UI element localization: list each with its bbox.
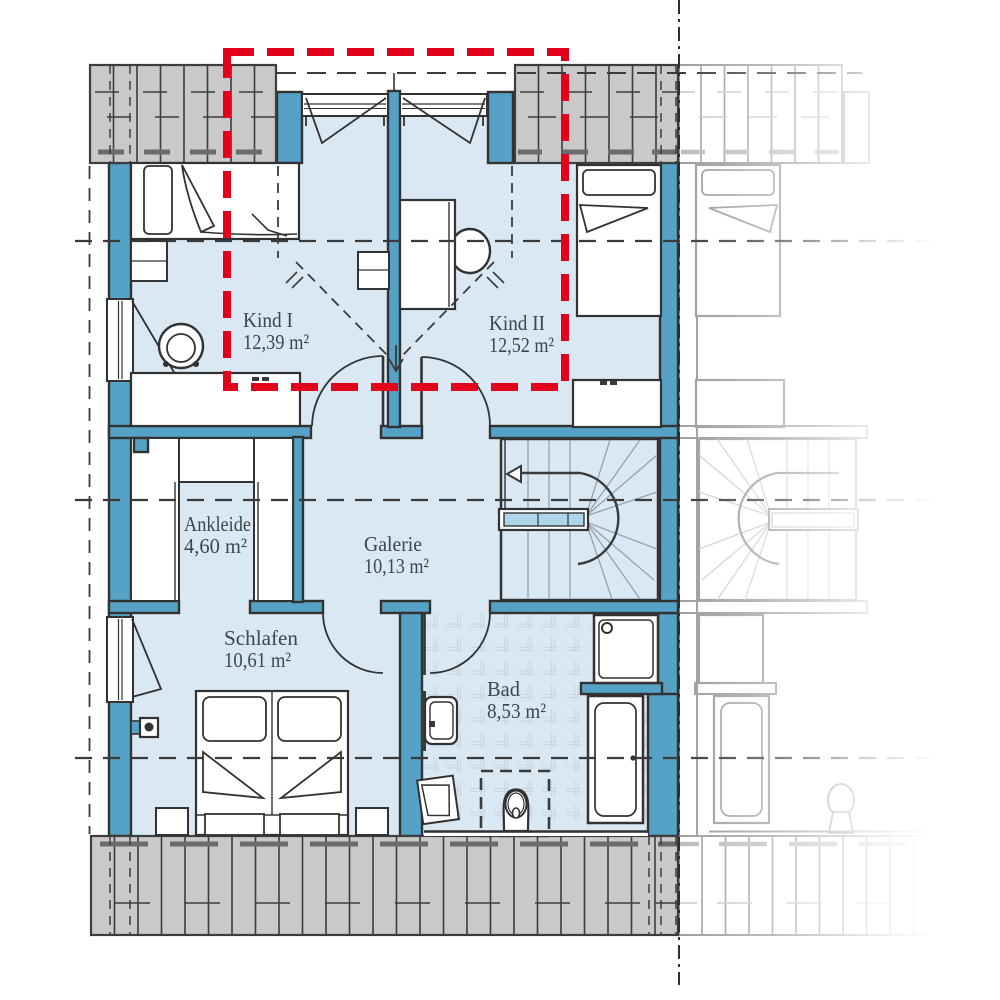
svg-text:Kind II: Kind II <box>489 311 545 335</box>
svg-text:8,53 m²: 8,53 m² <box>487 699 546 723</box>
svg-text:Ankleide: Ankleide <box>184 512 251 536</box>
svg-text:10,61 m²: 10,61 m² <box>224 648 291 672</box>
svg-text:Galerie: Galerie <box>364 532 422 556</box>
svg-text:12,39 m²: 12,39 m² <box>243 330 309 354</box>
svg-text:Kind I: Kind I <box>243 308 293 332</box>
svg-text:4,60 m²: 4,60 m² <box>184 534 247 558</box>
svg-text:10,13 m²: 10,13 m² <box>364 554 429 578</box>
svg-text:12,52 m²: 12,52 m² <box>489 333 554 357</box>
svg-text:Bad: Bad <box>487 677 520 701</box>
svg-text:Schlafen: Schlafen <box>224 626 298 650</box>
